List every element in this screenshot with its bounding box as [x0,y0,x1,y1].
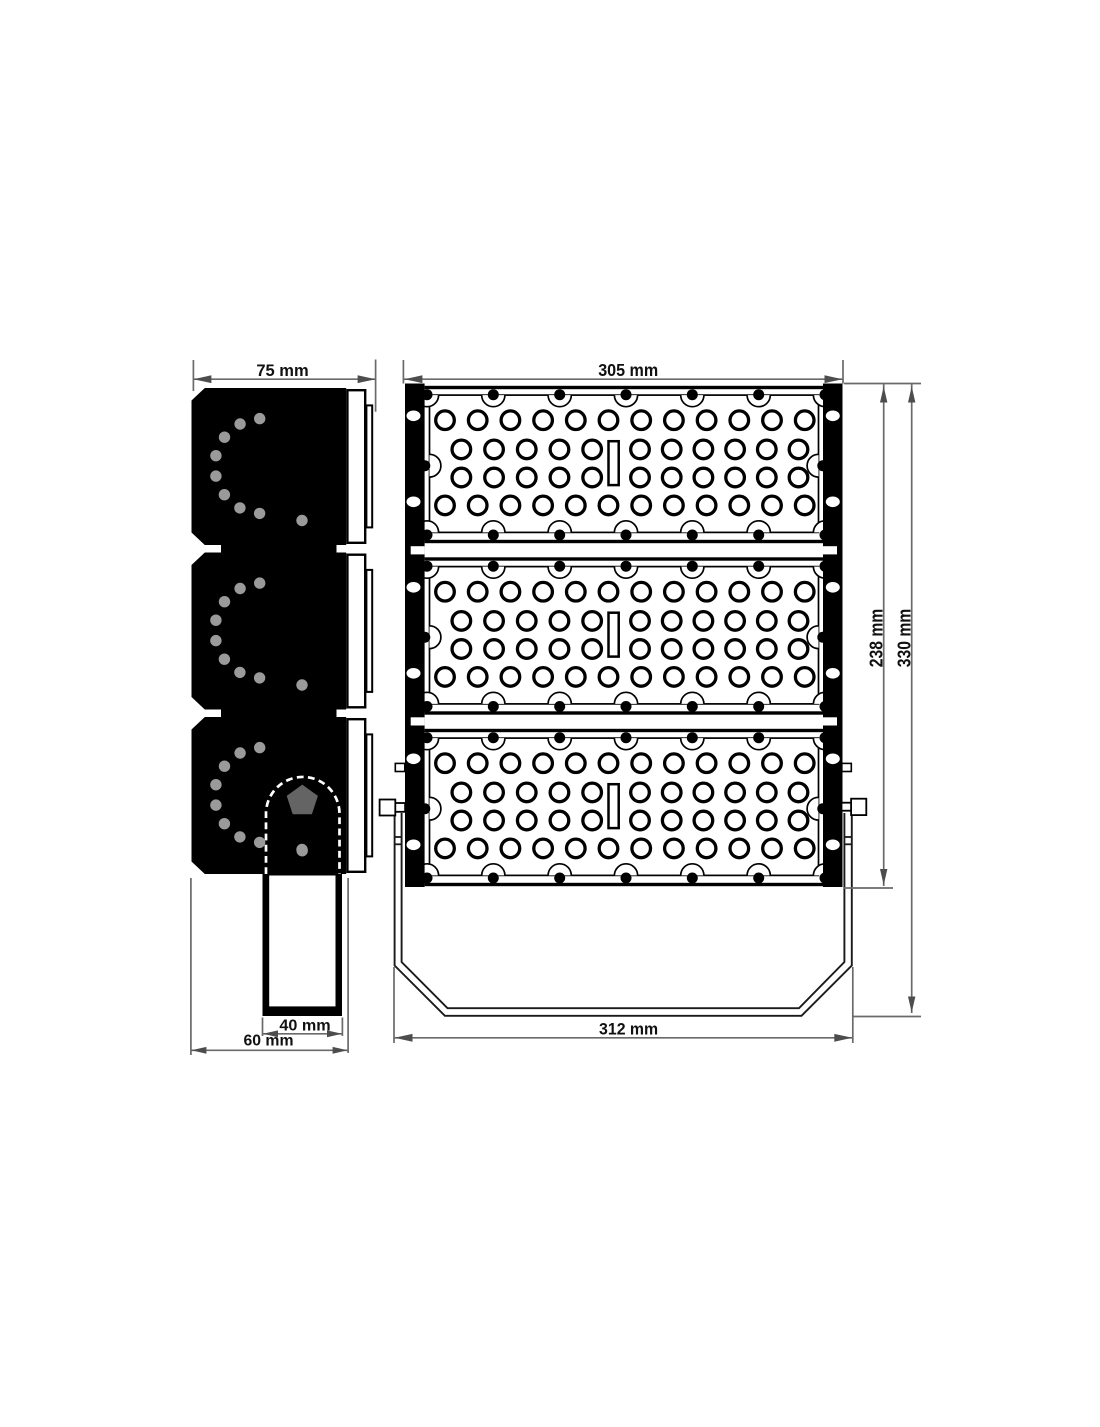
svg-text:60 mm: 60 mm [244,1033,294,1050]
svg-text:330 mm: 330 mm [894,609,915,668]
svg-text:75 mm: 75 mm [256,361,308,380]
svg-text:238 mm: 238 mm [866,609,887,668]
svg-text:305 mm: 305 mm [598,360,658,380]
svg-text:312 mm: 312 mm [599,1020,658,1039]
